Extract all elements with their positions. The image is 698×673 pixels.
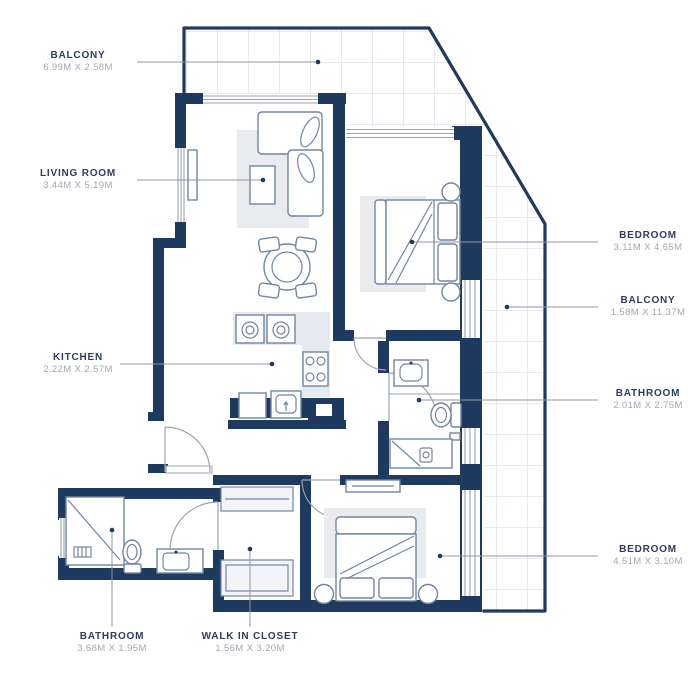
dryer xyxy=(267,315,295,343)
label-bedroom-bottom: BEDROOM 4.51M X 3.10M xyxy=(600,544,696,568)
room-name: BEDROOM xyxy=(600,544,696,556)
living-room-furniture xyxy=(188,112,323,298)
vanity-sink xyxy=(157,549,203,573)
label-bedroom-top: BEDROOM 3.11M X 4.65M xyxy=(600,230,696,254)
nightstand xyxy=(419,585,438,604)
nightstand xyxy=(315,585,334,604)
label-walk-in-closet: WALK IN CLOSET 1.56M X 3.20M xyxy=(190,631,310,655)
tv-unit xyxy=(188,150,197,200)
wardrobe xyxy=(221,560,293,596)
wardrobe xyxy=(221,487,293,511)
room-name: BEDROOM xyxy=(600,230,696,242)
room-dims: 6.99M X 2.58M xyxy=(18,62,138,74)
entry-slider xyxy=(166,466,212,473)
bed-bottom xyxy=(336,517,416,601)
room-dims: 1.58M X 11.37M xyxy=(600,307,696,319)
stove xyxy=(303,352,328,386)
bedroom-bottom-furniture xyxy=(315,480,438,604)
room-dims: 3.44M X 5.19M xyxy=(18,180,138,192)
cabinet xyxy=(239,393,266,418)
shower xyxy=(66,497,124,565)
label-balcony-top: BALCONY 6.99M X 2.58M xyxy=(18,50,138,74)
label-bathroom-bottom: BATHROOM 3.68M X 1.95M xyxy=(52,631,172,655)
toilet xyxy=(123,540,141,573)
room-dims: 4.51M X 3.10M xyxy=(600,556,696,568)
room-name: BATHROOM xyxy=(600,388,696,400)
room-name: KITCHEN xyxy=(18,352,138,364)
label-bathroom-right: BATHROOM 2.01M X 2.75M xyxy=(600,388,696,412)
room-name: BATHROOM xyxy=(52,631,172,643)
vanity-sink xyxy=(394,360,428,386)
coffee-table xyxy=(250,166,275,204)
toilet xyxy=(431,403,461,440)
bathroom-right-fixtures xyxy=(389,360,461,468)
room-name: LIVING ROOM xyxy=(18,168,138,180)
kitchen-corner-inset xyxy=(316,404,332,416)
room-dims: 2.01M X 2.75M xyxy=(600,400,696,412)
room-dims: 3.11M X 4.65M xyxy=(600,242,696,254)
label-balcony-right: BALCONY 1.58M X 11.37M xyxy=(600,295,696,319)
nightstand xyxy=(442,283,460,301)
room-dims: 1.56M X 3.20M xyxy=(190,643,310,655)
floor-plan-drawing xyxy=(0,0,698,673)
bathroom-bottom-fixtures xyxy=(66,497,203,573)
closet-furniture xyxy=(221,487,293,596)
room-name: BALCONY xyxy=(600,295,696,307)
shower xyxy=(390,439,452,468)
nightstand xyxy=(442,183,460,201)
label-kitchen: KITCHEN 2.22M X 2.57M xyxy=(18,352,138,376)
washer xyxy=(236,315,264,343)
floor-plan: BALCONY 6.99M X 2.58M LIVING ROOM 3.44M … xyxy=(0,0,698,673)
kitchen-sink xyxy=(271,391,301,418)
room-dims: 2.22M X 2.57M xyxy=(18,364,138,376)
label-living-room: LIVING ROOM 3.44M X 5.19M xyxy=(18,168,138,192)
dining-table xyxy=(258,237,317,299)
room-name: BALCONY xyxy=(18,50,138,62)
room-name: WALK IN CLOSET xyxy=(190,631,310,643)
room-dims: 3.68M X 1.95M xyxy=(52,643,172,655)
